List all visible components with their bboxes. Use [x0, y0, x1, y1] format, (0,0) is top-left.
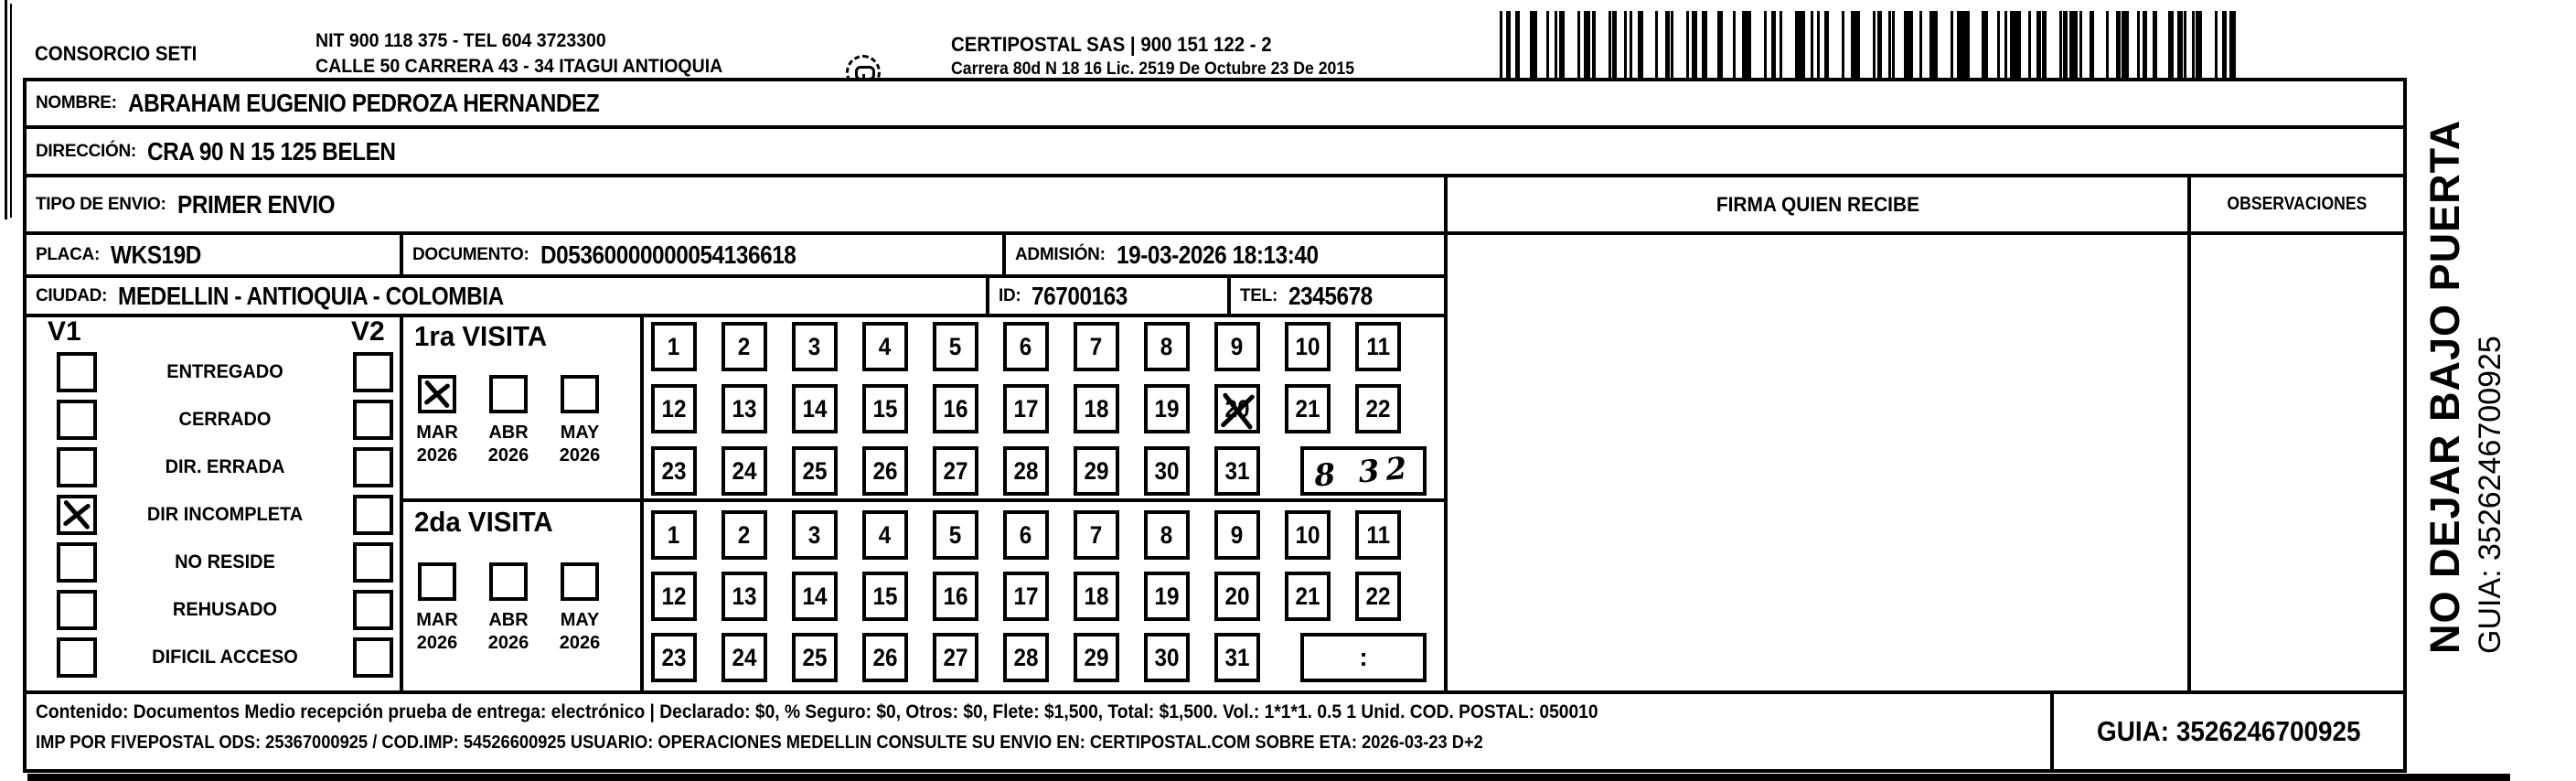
- status-label: ENTREGADO: [103, 361, 347, 383]
- company-address-line: CALLE 50 CARRERA 43 - 34 ITAGUI ANTIOQUI…: [315, 56, 722, 78]
- day-cell[interactable]: 17: [1003, 384, 1049, 433]
- status-row: REHUSADO: [27, 590, 400, 630]
- month-year: 2026: [417, 445, 458, 466]
- month-year: 2026: [488, 633, 529, 654]
- certipostal-license-line: Carrera 80d N 18 16 Lic. 2519 De Octubre…: [951, 59, 1354, 80]
- day-cell[interactable]: 20: [1214, 384, 1260, 433]
- month-checkbox[interactable]: [418, 375, 456, 413]
- scan-spine-line: [10, 4, 12, 218]
- tipo-envio-value: PRIMER ENVIO: [177, 190, 335, 219]
- day-cell[interactable]: 22: [1355, 572, 1401, 621]
- day-cell[interactable]: 15: [862, 384, 908, 433]
- month-option: ABR 2026: [483, 375, 534, 466]
- month-checkbox[interactable]: [561, 375, 599, 413]
- v2-column-label: V2: [351, 316, 385, 348]
- documento-cell: DOCUMENTO: D05360000000054136618: [400, 231, 1006, 278]
- day-cell[interactable]: 3: [792, 510, 838, 560]
- day-cell[interactable]: 13: [721, 384, 767, 433]
- day-cell[interactable]: 27: [933, 633, 978, 682]
- month-year: 2026: [488, 445, 529, 466]
- visit2-days-row1: 1234567891011: [644, 510, 1401, 560]
- ciudad-value: MEDELLIN - ANTIOQUIA - COLOMBIA: [118, 282, 504, 311]
- nombre-label: NOMBRE:: [36, 93, 117, 113]
- v1-column-label: V1: [48, 316, 81, 348]
- certipostal-name-line: CERTIPOSTAL SAS | 900 151 122 - 2: [951, 33, 1272, 57]
- day-cell[interactable]: 15: [862, 572, 908, 621]
- status-label: DIR INCOMPLETA: [103, 504, 347, 526]
- direccion-value: CRA 90 N 15 125 BELEN: [147, 137, 396, 166]
- day-cell[interactable]: 17: [1003, 572, 1049, 621]
- day-cell[interactable]: 18: [1074, 572, 1119, 621]
- day-cell[interactable]: 31: [1214, 446, 1260, 496]
- company-nit-line: NIT 900 118 375 - TEL 604 3723300: [315, 30, 606, 52]
- v2-checkbox[interactable]: [353, 590, 393, 630]
- day-cell[interactable]: 1: [651, 322, 697, 371]
- visit2-months: MAR 2026 ABR 2026 MAY 2026: [412, 562, 605, 654]
- visit2-title: 2da VISITA: [414, 506, 553, 539]
- day-cell[interactable]: 19: [1144, 384, 1190, 433]
- status-rows: ENTREGADO CERRADO DIR. ERRADA: [27, 352, 400, 678]
- tipo-envio-cell: TIPO DE ENVIO: PRIMER ENVIO: [23, 174, 1448, 235]
- documento-value: D05360000000054136618: [540, 241, 796, 270]
- day-cell[interactable]: 12: [651, 572, 697, 621]
- day-cell[interactable]: 10: [1285, 322, 1331, 371]
- day-cell[interactable]: 11: [1355, 510, 1401, 560]
- day-cell[interactable]: 28: [1003, 633, 1049, 682]
- status-label: REHUSADO: [103, 599, 347, 621]
- id-cell: ID: 76700163: [986, 274, 1231, 317]
- day-cell[interactable]: 12: [651, 384, 697, 433]
- handwritten-x-mark: [60, 498, 93, 531]
- day-cell[interactable]: 11: [1355, 322, 1401, 371]
- day-cell[interactable]: 6: [1003, 510, 1049, 560]
- admision-value: 19-03-2026 18:13:40: [1117, 241, 1319, 270]
- observaciones-header: OBSERVACIONES: [2228, 194, 2368, 215]
- visit1-time-entry-box[interactable]: 8 32: [1300, 446, 1427, 496]
- placa-value: WKS19D: [111, 241, 201, 270]
- scan-bottom-edge: [27, 774, 2510, 781]
- day-cell[interactable]: 13: [721, 572, 767, 621]
- day-cell[interactable]: 16: [933, 384, 978, 433]
- tel-label: TEL:: [1240, 286, 1277, 306]
- v1-checkbox[interactable]: [57, 400, 97, 440]
- v2-checkbox[interactable]: [353, 447, 393, 487]
- month-year: 2026: [417, 633, 458, 654]
- day-cell[interactable]: 4: [862, 510, 908, 560]
- day-cell[interactable]: 2: [721, 322, 767, 371]
- day-cell[interactable]: 5: [933, 322, 978, 371]
- month-label: MAY: [561, 610, 600, 631]
- v2-checkbox[interactable]: [353, 637, 393, 678]
- status-label: NO RESIDE: [103, 551, 347, 573]
- day-cell[interactable]: 26: [862, 633, 908, 682]
- v1-checkbox[interactable]: [57, 637, 97, 678]
- visit1-months: MAR 2026 ABR 2026 MAY 2026: [412, 375, 605, 466]
- admision-label: ADMISIÓN:: [1015, 245, 1106, 265]
- guia-cell: GUIA: 3526246700925: [2050, 690, 2407, 773]
- day-cell[interactable]: 7: [1074, 510, 1119, 560]
- day-cell[interactable]: 10: [1285, 510, 1331, 560]
- month-option: ABR 2026: [483, 562, 534, 654]
- day-cell[interactable]: 21: [1285, 384, 1331, 433]
- day-cell[interactable]: 3: [792, 322, 838, 371]
- company-name: CONSORCIO SETI: [35, 42, 197, 66]
- month-option: MAR 2026: [412, 375, 463, 466]
- month-label: MAR: [416, 423, 458, 444]
- day-cell[interactable]: 26: [862, 446, 908, 496]
- month-option: MAY 2026: [554, 375, 605, 466]
- day-cell[interactable]: 31: [1214, 633, 1260, 682]
- id-label: ID:: [999, 286, 1021, 306]
- admision-cell: ADMISIÓN: 19-03-2026 18:13:40: [1002, 231, 1448, 278]
- visit1-days-row3: 232425262728293031: [644, 446, 1260, 496]
- day-cell[interactable]: 1: [651, 510, 697, 560]
- month-option: MAY 2026: [554, 562, 605, 654]
- day-cell[interactable]: 22: [1355, 384, 1401, 433]
- day-cell[interactable]: 14: [792, 384, 838, 433]
- day-cell[interactable]: 9: [1214, 510, 1260, 560]
- month-checkbox[interactable]: [561, 562, 599, 601]
- ciudad-label: CIUDAD:: [36, 286, 107, 306]
- visit1-days-row1: 1234567891011: [644, 322, 1401, 371]
- month-checkbox[interactable]: [489, 562, 528, 601]
- tel-value: 2345678: [1288, 282, 1373, 311]
- v1-checkbox[interactable]: [57, 447, 97, 487]
- visit1-days-row2: 1213141516171819202122: [644, 384, 1401, 433]
- day-cell[interactable]: 27: [933, 446, 978, 496]
- tel-cell: TEL: 2345678: [1227, 274, 1448, 317]
- scan-spine-line: [5, 0, 7, 219]
- day-cell[interactable]: 4: [862, 322, 908, 371]
- status-row: NO RESIDE: [27, 542, 400, 583]
- direccion-label: DIRECCIÓN:: [36, 142, 136, 162]
- day-cell[interactable]: 7: [1074, 322, 1119, 371]
- day-cell[interactable]: 8: [1144, 322, 1190, 371]
- month-checkbox[interactable]: [418, 562, 456, 601]
- observaciones-header-cell: OBSERVACIONES: [2187, 174, 2407, 235]
- status-row: CERRADO: [27, 400, 400, 440]
- status-label: CERRADO: [103, 409, 347, 431]
- delivery-form-scan: CONSORCIO SETI NIT 900 118 375 - TEL 604…: [0, 0, 2576, 781]
- nombre-value: ABRAHAM EUGENIO PEDROZA HERNANDEZ: [128, 89, 599, 118]
- day-cell[interactable]: 24: [721, 446, 767, 496]
- imp-line: IMP POR FIVEPOSTAL ODS: 25367000925 / CO…: [36, 733, 1483, 754]
- month-option: MAR 2026: [412, 562, 463, 654]
- handwritten-x-mark: [422, 379, 453, 410]
- day-cell[interactable]: 28: [1003, 446, 1049, 496]
- visit1-title: 1ra VISITA: [414, 320, 547, 353]
- status-row: DIFICIL ACCESO: [27, 637, 400, 678]
- day-cell[interactable]: 2: [721, 510, 767, 560]
- day-cell[interactable]: 23: [651, 446, 697, 496]
- day-cell[interactable]: 8: [1144, 510, 1190, 560]
- nombre-row: NOMBRE: ABRAHAM EUGENIO PEDROZA HERNANDE…: [23, 78, 2407, 129]
- day-cell[interactable]: 24: [721, 633, 767, 682]
- v2-checkbox[interactable]: [353, 352, 393, 392]
- firma-header: FIRMA QUIEN RECIBE: [1716, 193, 1919, 217]
- ciudad-cell: CIUDAD: MEDELLIN - ANTIOQUIA - COLOMBIA: [23, 274, 989, 317]
- month-label: ABR: [488, 610, 528, 631]
- firma-header-cell: FIRMA QUIEN RECIBE: [1444, 174, 2191, 235]
- status-row: DIR INCOMPLETA: [27, 495, 400, 535]
- documento-label: DOCUMENTO:: [412, 245, 529, 265]
- day-cell[interactable]: 19: [1144, 572, 1190, 621]
- v2-checkbox[interactable]: [353, 542, 393, 583]
- month-label: ABR: [488, 423, 528, 444]
- status-label: DIFICIL ACCESO: [103, 647, 347, 669]
- side-warning-text: NO DEJAR BAJO PUERTA: [2421, 120, 2469, 654]
- firma-signature-area[interactable]: [1444, 231, 2191, 694]
- month-label: MAY: [561, 423, 600, 444]
- day-cell[interactable]: 14: [792, 572, 838, 621]
- status-row: ENTREGADO: [27, 352, 400, 392]
- day-cell[interactable]: 16: [933, 572, 978, 621]
- day-cell[interactable]: 6: [1003, 322, 1049, 371]
- day-cell[interactable]: 20: [1214, 572, 1260, 621]
- day-cell[interactable]: 9: [1214, 322, 1260, 371]
- status-row: DIR. ERRADA: [27, 447, 400, 487]
- month-label: MAR: [416, 610, 458, 631]
- day-cell[interactable]: 25: [792, 633, 838, 682]
- day-cell[interactable]: 23: [651, 633, 697, 682]
- day-cell[interactable]: 18: [1074, 384, 1119, 433]
- v1-checkbox[interactable]: [57, 590, 97, 630]
- v1-checkbox[interactable]: [57, 352, 97, 392]
- direccion-row: DIRECCIÓN: CRA 90 N 15 125 BELEN: [23, 125, 2407, 177]
- contenido-line: Contenido: Documentos Medio recepción pr…: [36, 701, 1598, 723]
- visit2-time-entry-box[interactable]: :: [1300, 633, 1427, 682]
- day-cell[interactable]: 21: [1285, 572, 1331, 621]
- status-label: DIR. ERRADA: [103, 456, 347, 478]
- v2-checkbox[interactable]: [353, 495, 393, 535]
- placa-label: PLACA:: [36, 245, 100, 265]
- day-cell[interactable]: 30: [1144, 633, 1190, 682]
- day-cell[interactable]: 25: [792, 446, 838, 496]
- day-cell[interactable]: 5: [933, 510, 978, 560]
- visit2-days-row3: 232425262728293031: [644, 633, 1260, 682]
- v1-checkbox[interactable]: [57, 495, 97, 535]
- day-cell[interactable]: 29: [1074, 446, 1119, 496]
- contenido-cell: Contenido: Documentos Medio recepción pr…: [23, 690, 2054, 773]
- month-checkbox[interactable]: [489, 375, 528, 413]
- time-colon: :: [1359, 643, 1367, 672]
- month-year: 2026: [560, 445, 601, 466]
- tipo-envio-label: TIPO DE ENVIO:: [36, 195, 166, 215]
- placa-cell: PLACA: WKS19D: [23, 231, 403, 278]
- visit2-days-row2: 1213141516171819202122: [644, 572, 1401, 621]
- day-cell[interactable]: 30: [1144, 446, 1190, 496]
- observaciones-area[interactable]: [2187, 231, 2407, 694]
- side-guia-text: GUIA: 3526246700925: [2473, 336, 2508, 654]
- id-value: 76700163: [1031, 282, 1128, 311]
- v2-checkbox[interactable]: [353, 400, 393, 440]
- handwritten-time: 8 32: [1312, 449, 1414, 493]
- v1-checkbox[interactable]: [57, 542, 97, 583]
- day-cell[interactable]: 29: [1074, 633, 1119, 682]
- guia-number: GUIA: 3526246700925: [2097, 715, 2361, 748]
- month-year: 2026: [560, 633, 601, 654]
